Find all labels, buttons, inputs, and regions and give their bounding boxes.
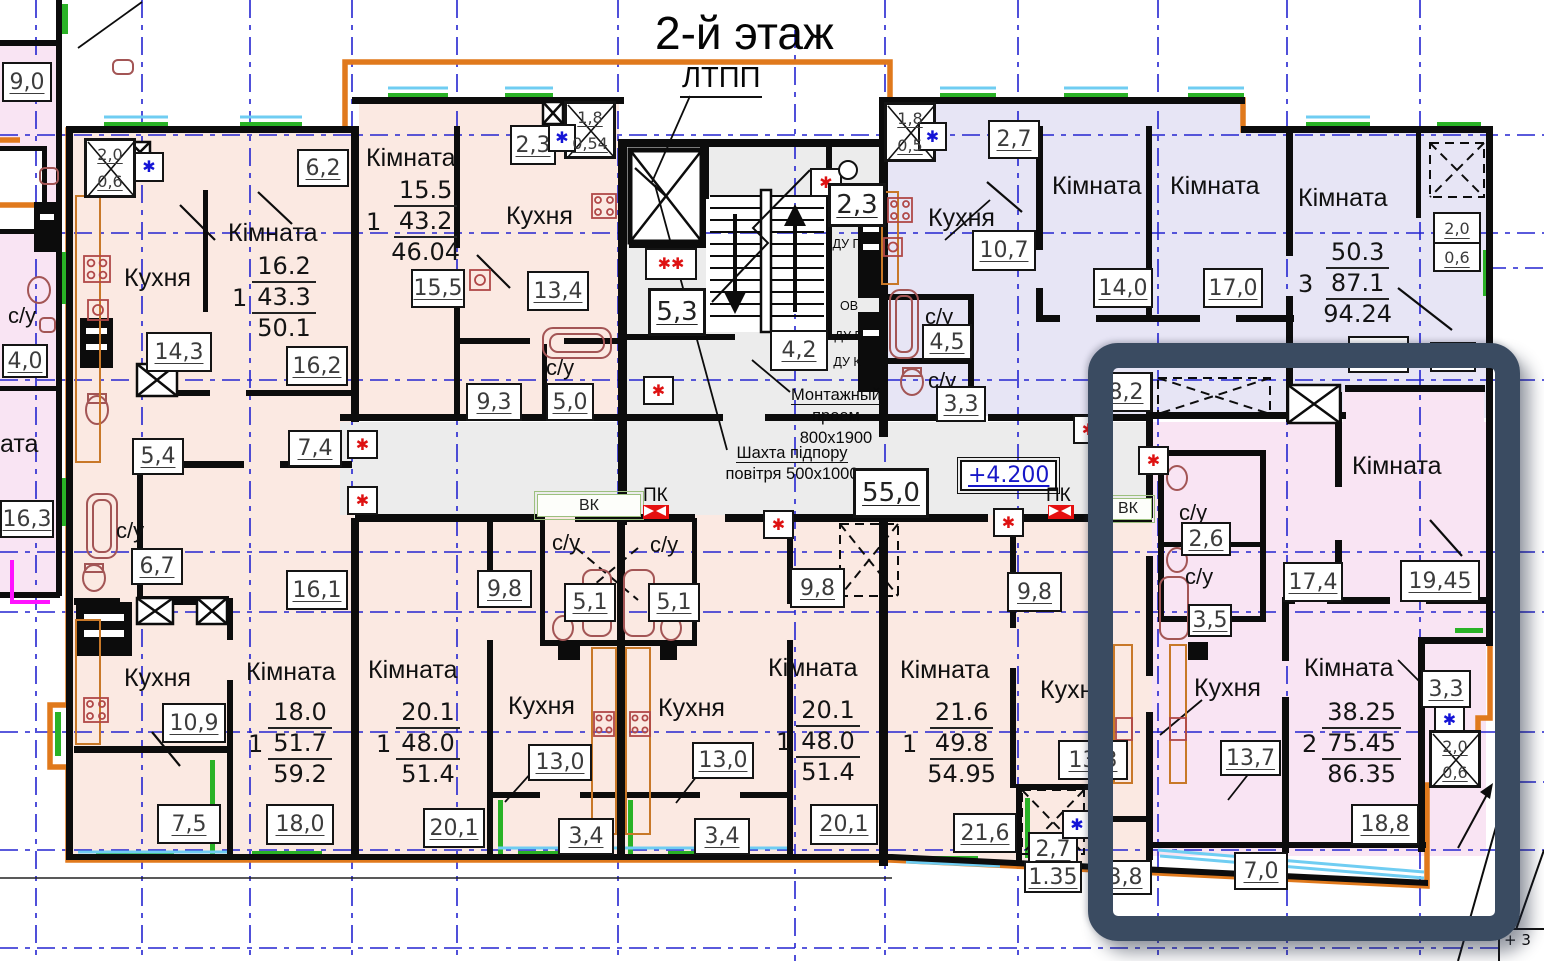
red-asterisk-icon: ✱ — [993, 508, 1024, 537]
area-box: 13,0 — [692, 742, 754, 779]
red-asterisk-icon: ✱ — [763, 510, 794, 539]
apartment-summary: 1 16.243.350.1 — [232, 252, 316, 343]
pk-valve-label: ПК — [1046, 485, 1071, 507]
area-box: 1.35 — [1024, 861, 1082, 893]
duct-label: ОВ — [836, 300, 862, 313]
area-box: 9,0 — [2, 62, 52, 102]
area-box: 4,2 — [770, 330, 828, 371]
pk-valve-icon — [643, 505, 669, 519]
room-label: Кімната — [368, 656, 458, 685]
apartment-summary: 1 21.649.854.95 — [902, 698, 1001, 789]
area-box: 9,3 — [466, 383, 522, 421]
area-box: 20,1 — [810, 804, 878, 845]
area-box: 2,3 — [828, 183, 886, 227]
area-box: 7,4 — [288, 430, 342, 467]
pk-valve-icon — [1048, 505, 1074, 519]
red-asterisk-icon: ✱ — [347, 486, 378, 515]
area-box: 3,4 — [558, 818, 614, 855]
kitchen-label: Кухня — [124, 664, 191, 693]
duct-label: ДУ П — [828, 330, 870, 343]
room-label: Кімната — [228, 219, 318, 248]
area-box: 16,1 — [286, 570, 348, 610]
vent-shaft: 2,00,6 — [84, 138, 136, 198]
vk-valve-label: ВК — [537, 494, 641, 517]
room-label: Кімната — [1052, 172, 1142, 201]
room-label: Кімната — [1170, 172, 1260, 201]
area-box: 21,6 — [953, 813, 1017, 853]
area-box: 5,3 — [648, 288, 706, 336]
area-box: 3,3 — [936, 386, 986, 422]
room-label: Кімната — [1298, 184, 1388, 213]
area-box: 4,0 — [2, 344, 48, 378]
duct-label: ДУ К — [832, 356, 862, 369]
pk-valve-label: ПК — [643, 485, 668, 507]
apartment-summary: 1 20.148.051.4 — [776, 696, 860, 787]
elevation-mark: +4.200 — [960, 460, 1057, 491]
wc-label: с/у — [546, 355, 574, 381]
room-label: Кімната — [246, 658, 336, 687]
area-box: 55,0 — [853, 468, 929, 518]
area-box: 5,1 — [648, 583, 700, 622]
area-box: 7,5 — [157, 804, 221, 844]
area-box: 13,0 — [528, 744, 592, 781]
area-box: 16,2 — [286, 346, 348, 386]
area-box: 10,7 — [972, 230, 1036, 271]
ltpp-label: ЛТПП — [680, 62, 762, 98]
area-box: 4,5 — [922, 324, 972, 360]
kitchen-label: Кухня — [124, 264, 191, 293]
area-box: 14,0 — [1093, 268, 1153, 308]
apartment-summary: 3 50.387.194.24 — [1298, 238, 1397, 329]
double-red-asterisk-icon: ✱✱ — [645, 248, 697, 280]
area-box: 0,6 — [1433, 242, 1481, 272]
area-box: 6,2 — [297, 149, 349, 187]
room-label-partial: ата — [0, 430, 38, 459]
blue-asterisk-icon: ✱ — [134, 152, 164, 182]
red-asterisk-icon: ✱ — [347, 430, 378, 459]
kitchen-label: Кухня — [506, 202, 573, 231]
area-box: 5,0 — [546, 383, 594, 421]
room-label: Кімната — [900, 656, 990, 685]
kitchen-label: Кухня — [928, 204, 995, 233]
plan-title: 2-й этаж — [655, 6, 834, 60]
area-box: 5,4 — [132, 438, 184, 475]
area-box: 20,1 — [423, 808, 485, 848]
kitchen-label: Кухня — [658, 694, 725, 723]
area-box: 9,8 — [790, 568, 845, 608]
wc-label: с/у — [8, 303, 36, 329]
wc-label: с/у — [116, 518, 144, 544]
area-box: 18,0 — [266, 804, 334, 845]
area-box: 15,5 — [411, 269, 465, 308]
area-box: 17,0 — [1203, 268, 1263, 308]
area-box: 5,1 — [564, 583, 616, 622]
kitchen-label: Кухня — [508, 692, 575, 721]
wc-label: с/у — [650, 532, 678, 558]
apartment-summary: 1 15.543.246.04 — [366, 176, 465, 267]
apartment-summary: 1 20.148.051.4 — [376, 698, 460, 789]
duct-label: ДУ П — [832, 238, 862, 251]
area-box: 14,3 — [146, 332, 212, 372]
floor-plan: 2-й этаж ЛТПП 9,0 с/у 4,0 ата 16,3 2,00,… — [0, 0, 1544, 961]
area-box: 2,7 — [988, 120, 1040, 159]
area-box: 9,8 — [1007, 572, 1062, 612]
room-label: Кімната — [366, 144, 456, 173]
mount-opening-note: Монтажныйпроем800х1900 — [786, 385, 886, 449]
area-box: 16,3 — [0, 500, 54, 538]
wc-label: с/у — [552, 530, 580, 556]
air-shaft-note: Шахта підпоруповітря 500х1000 — [712, 443, 872, 486]
room-label: Кімната — [768, 654, 858, 683]
area-box: 13,4 — [527, 271, 589, 311]
apartment-summary: 1 18.051.759.2 — [248, 698, 332, 789]
red-asterisk-icon: ✱ — [643, 376, 674, 405]
area-box: 6,7 — [131, 548, 183, 585]
area-box: 2,0 — [1433, 212, 1481, 244]
area-box: 9,8 — [477, 570, 532, 608]
apartment-highlight-frame — [1088, 343, 1520, 941]
area-box: 10,9 — [162, 703, 226, 743]
area-box: 3,4 — [694, 818, 750, 855]
column-marker-icon — [838, 160, 858, 180]
